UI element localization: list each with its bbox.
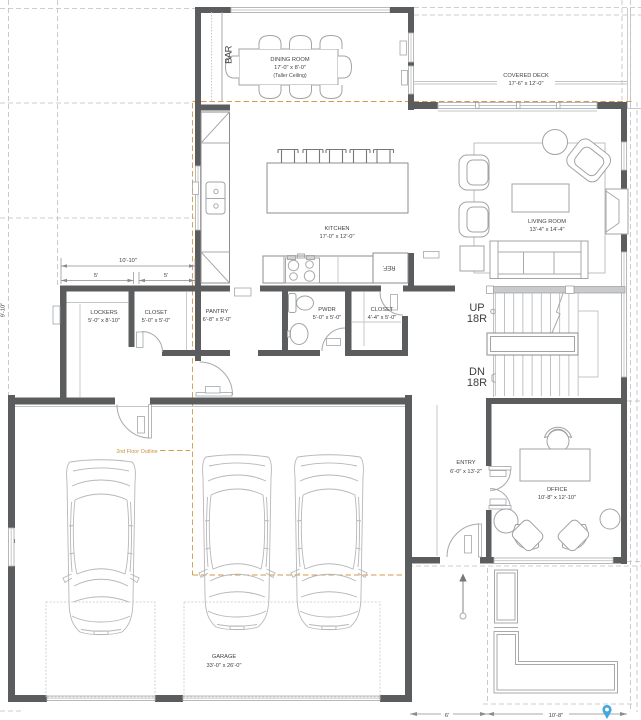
svg-text:COVERED DECK: COVERED DECK xyxy=(503,73,549,79)
svg-text:CLOSET: CLOSET xyxy=(371,307,394,313)
svg-text:BAR: BAR xyxy=(224,45,235,63)
svg-text:10'-8" x 12'-10": 10'-8" x 12'-10" xyxy=(538,495,576,501)
svg-text:(Taller Ceiling): (Taller Ceiling) xyxy=(273,73,306,79)
svg-text:PANTRY: PANTRY xyxy=(206,309,229,315)
svg-text:9'-10": 9'-10" xyxy=(1,303,7,318)
svg-text:PWDR: PWDR xyxy=(318,307,335,313)
svg-text:17'-0" x 8'-0": 17'-0" x 8'-0" xyxy=(274,65,306,71)
svg-text:18R: 18R xyxy=(467,377,487,389)
svg-text:OFFICE: OFFICE xyxy=(547,487,568,493)
svg-text:17'-6" x 12'-0": 17'-6" x 12'-0" xyxy=(509,81,544,87)
svg-text:13'-4" x 14'-4": 13'-4" x 14'-4" xyxy=(530,227,565,233)
svg-text:6': 6' xyxy=(445,713,449,719)
svg-text:5': 5' xyxy=(164,273,168,279)
svg-text:18R: 18R xyxy=(467,313,487,325)
svg-text:33'-0" x 26'-0": 33'-0" x 26'-0" xyxy=(207,663,242,669)
svg-text:5'-0" x 5'-0": 5'-0" x 5'-0" xyxy=(142,318,171,324)
svg-text:KITCHEN: KITCHEN xyxy=(325,226,350,232)
svg-text:LOCKERS: LOCKERS xyxy=(90,310,117,316)
svg-text:5'-0" x 5'-0": 5'-0" x 5'-0" xyxy=(313,315,342,321)
svg-text:6'-0" x 13'-2": 6'-0" x 13'-2" xyxy=(450,469,482,475)
svg-text:4'-4" x 5'-0": 4'-4" x 5'-0" xyxy=(368,315,397,321)
svg-text:17'-0" x 12'-0": 17'-0" x 12'-0" xyxy=(320,234,355,240)
svg-text:5'-0" x 8'-10": 5'-0" x 8'-10" xyxy=(88,318,120,324)
svg-text:REF.: REF. xyxy=(382,264,395,270)
svg-text:CLOSET: CLOSET xyxy=(145,310,168,316)
svg-text:2nd Floor Outline: 2nd Floor Outline xyxy=(116,449,157,455)
svg-text:LIVING ROOM: LIVING ROOM xyxy=(528,219,566,225)
svg-text:10'-8": 10'-8" xyxy=(549,713,564,719)
svg-text:DINING ROOM: DINING ROOM xyxy=(270,57,309,63)
svg-text:6'-8" x 5'-0": 6'-8" x 5'-0" xyxy=(203,317,232,323)
svg-text:ENTRY: ENTRY xyxy=(456,460,475,466)
svg-text:5': 5' xyxy=(94,273,98,279)
svg-text:GARAGE: GARAGE xyxy=(212,654,237,660)
svg-text:10'-10": 10'-10" xyxy=(119,258,137,264)
